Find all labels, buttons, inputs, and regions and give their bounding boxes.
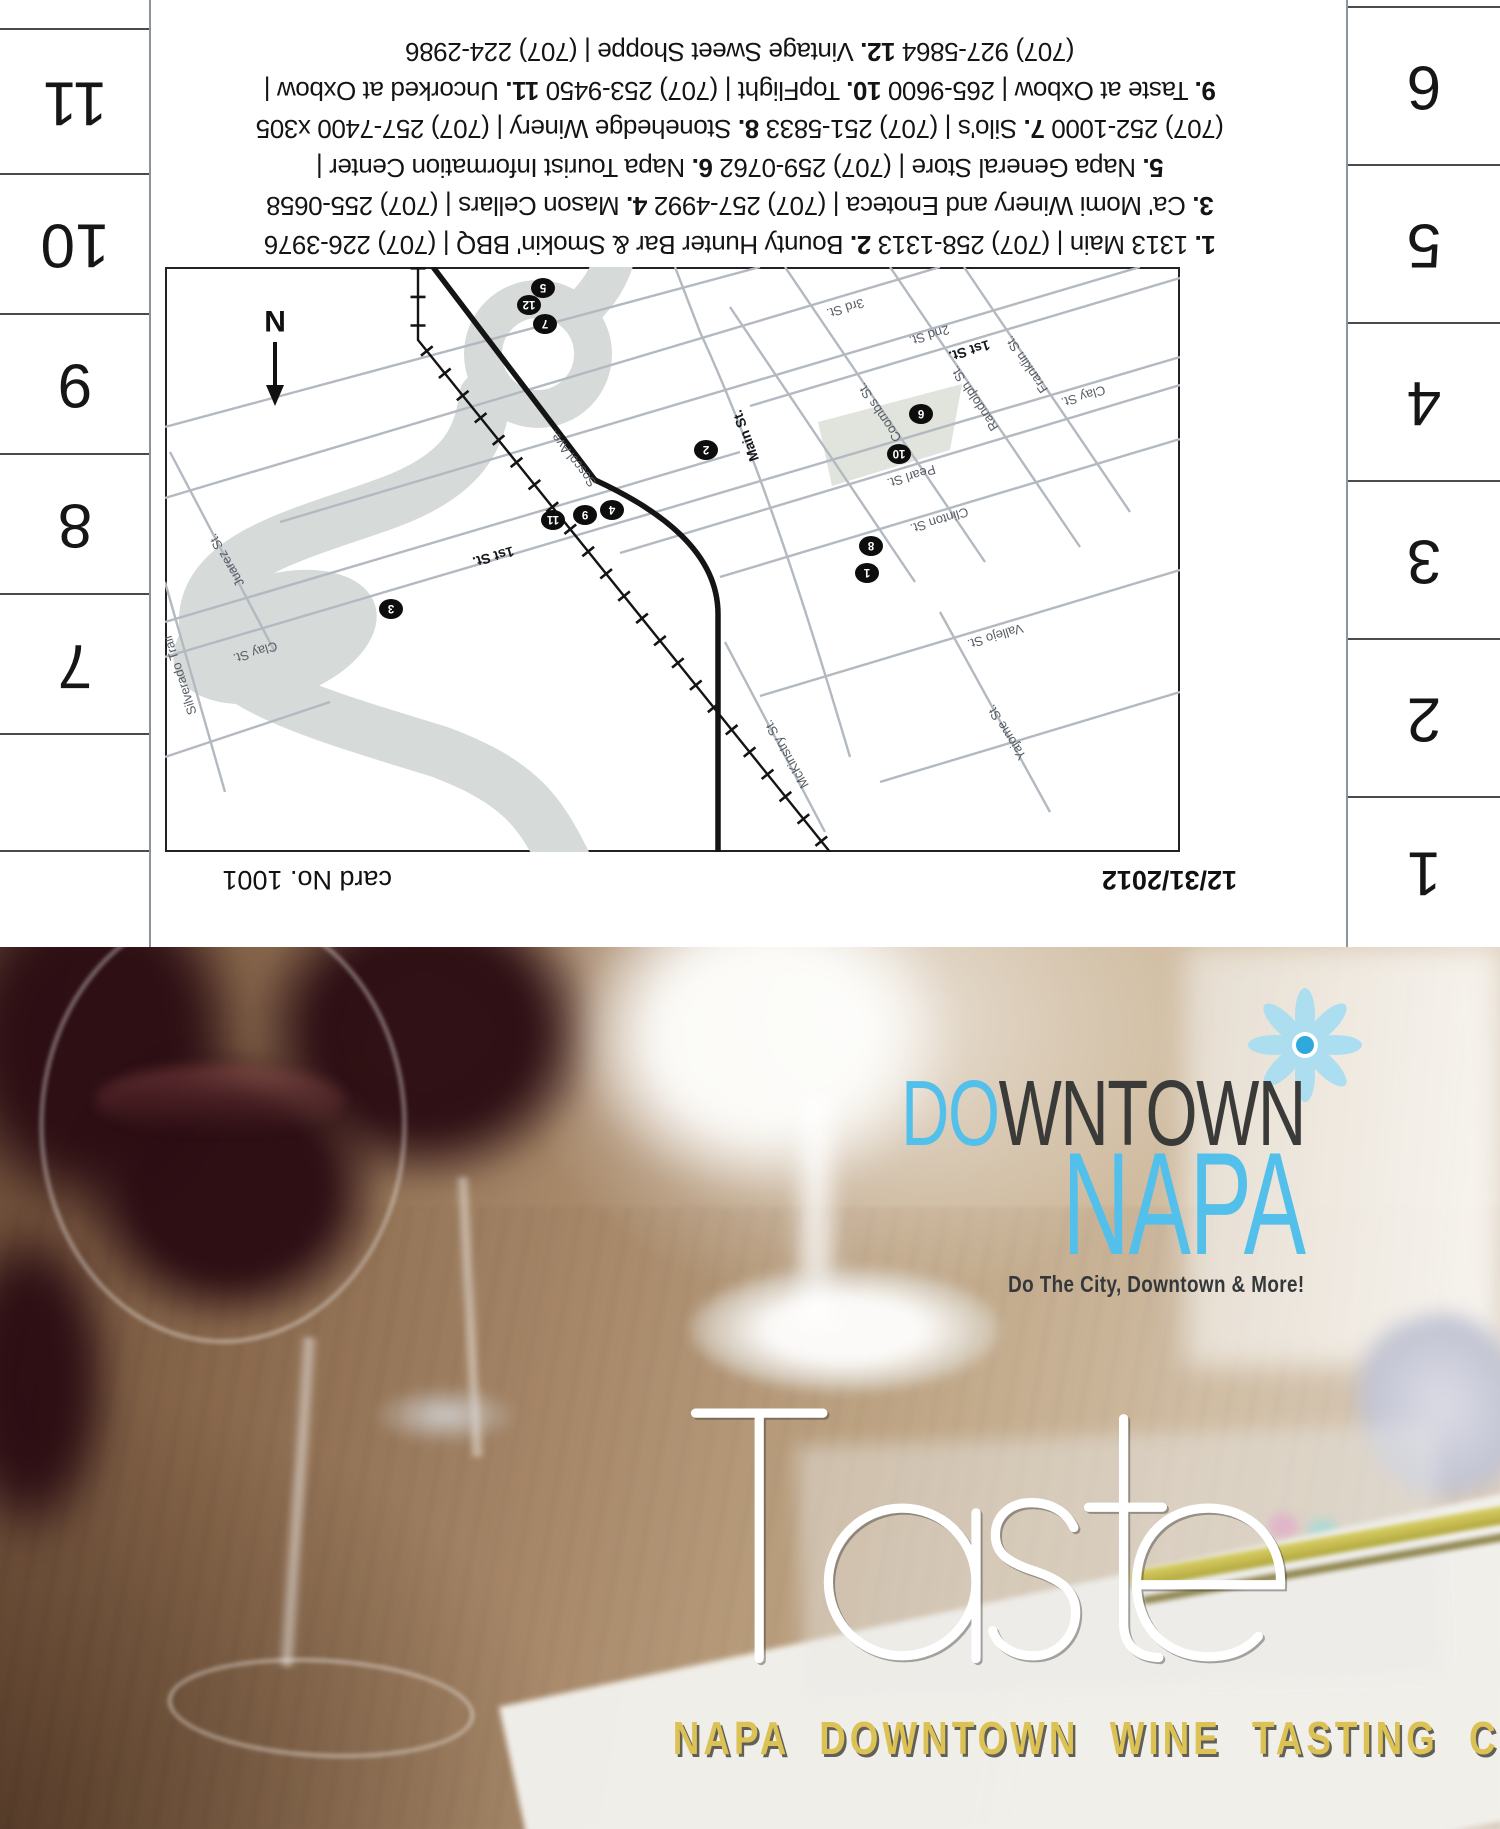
location-line: 9. Taste at Oxbow | 265-9600 10. TopFlig…	[150, 72, 1330, 111]
card-subtitle: NAPA DOWNTOWN WINE TASTING CARD	[558, 1711, 1462, 1765]
napa-map: N Soscol Ave.Main St.1st St.1st St.2nd S…	[165, 267, 1180, 852]
svg-text:8: 8	[867, 539, 874, 551]
punch-box-right: 9	[58, 350, 92, 421]
punch-divider	[1348, 164, 1500, 166]
svg-text:4: 4	[608, 503, 615, 515]
map-marker: 1	[855, 563, 879, 583]
card-number: card No. 1001	[222, 864, 392, 895]
napa-map-svg: N Soscol Ave.Main St.1st St.1st St.2nd S…	[165, 267, 1180, 852]
punch-box-left: 6	[1407, 52, 1441, 123]
location-line: 1. 1313 Main | (707) 258-1313 2. Bounty …	[150, 226, 1330, 265]
punch-divider	[0, 850, 149, 852]
punch-divider	[0, 173, 149, 175]
card-back: 12/31/2012 card No. 1001	[0, 0, 1500, 947]
map-marker: 6	[909, 404, 933, 424]
punch-divider	[1348, 6, 1500, 8]
svg-text:10: 10	[893, 447, 906, 459]
map-marker: 9	[573, 505, 597, 525]
card-front-photo: DOWNTOWN NAPA Do The City, Downtown & Mo…	[0, 947, 1500, 1829]
map-marker: 11	[541, 510, 565, 530]
punch-box-right: 10	[41, 210, 110, 281]
location-line: (707) 927-5864 12. Vintage Sweet Shoppe …	[150, 33, 1330, 72]
map-marker: 5	[531, 278, 555, 298]
punch-divider	[1348, 796, 1500, 798]
punch-box-right: 7	[58, 631, 92, 702]
map-marker: 10	[887, 444, 911, 464]
wine-surface-highlight	[95, 1065, 345, 1135]
map-marker: 12	[517, 295, 541, 315]
logo-napa-text: NAPA	[926, 1131, 1305, 1277]
punch-column-divider	[1346, 0, 1348, 947]
location-line: 3. Ca' Momi Winery and Enoteca | (707) 2…	[150, 187, 1330, 226]
svg-text:11: 11	[546, 513, 559, 525]
logo-tagline: Do The City, Downtown & More!	[943, 1273, 1305, 1296]
punch-box-left: 1	[1407, 838, 1441, 909]
location-line: (707) 252-1000 7. Silo's | (707) 251-583…	[150, 110, 1330, 149]
svg-text:2: 2	[703, 443, 709, 455]
svg-text:7: 7	[542, 317, 548, 329]
svg-text:12: 12	[523, 298, 536, 310]
punch-divider	[1348, 480, 1500, 482]
location-list: 1. 1313 Main | (707) 258-1313 2. Bounty …	[150, 33, 1330, 264]
punch-box-right: 8	[58, 490, 92, 561]
punch-divider	[0, 733, 149, 735]
wine-glass-back-foot	[370, 1385, 520, 1445]
punch-box-right: 11	[43, 68, 107, 139]
location-line: 5. Napa General Store | (707) 259-0762 6…	[150, 149, 1330, 188]
map-marker: 3	[379, 599, 403, 619]
punch-divider	[0, 313, 149, 315]
map-marker: 4	[600, 500, 624, 520]
downtown-napa-logo: DOWNTOWN NAPA Do The City, Downtown & Mo…	[705, 947, 1305, 1367]
svg-text:5: 5	[539, 281, 546, 293]
punch-divider	[1348, 638, 1500, 640]
wine-tasting-card-scan: 12/31/2012 card No. 1001	[0, 0, 1500, 1829]
map-marker: 7	[533, 314, 557, 334]
map-marker: 8	[859, 536, 883, 556]
compass-label: N	[264, 304, 286, 337]
punch-divider	[1348, 322, 1500, 324]
taste-title	[688, 1391, 1288, 1677]
svg-text:9: 9	[582, 508, 588, 520]
punch-box-left: 2	[1407, 684, 1441, 755]
punch-box-left: 5	[1407, 210, 1441, 281]
punch-box-left: 4	[1407, 368, 1441, 439]
punch-divider	[0, 593, 149, 595]
svg-text:3: 3	[388, 602, 394, 614]
map-marker: 2	[694, 440, 718, 460]
svg-text:1: 1	[863, 566, 870, 578]
expiry-date: 12/31/2012	[1102, 864, 1237, 895]
punch-divider	[0, 453, 149, 455]
svg-text:6: 6	[918, 407, 924, 419]
punch-divider	[0, 28, 149, 30]
punch-box-left: 3	[1407, 526, 1441, 597]
